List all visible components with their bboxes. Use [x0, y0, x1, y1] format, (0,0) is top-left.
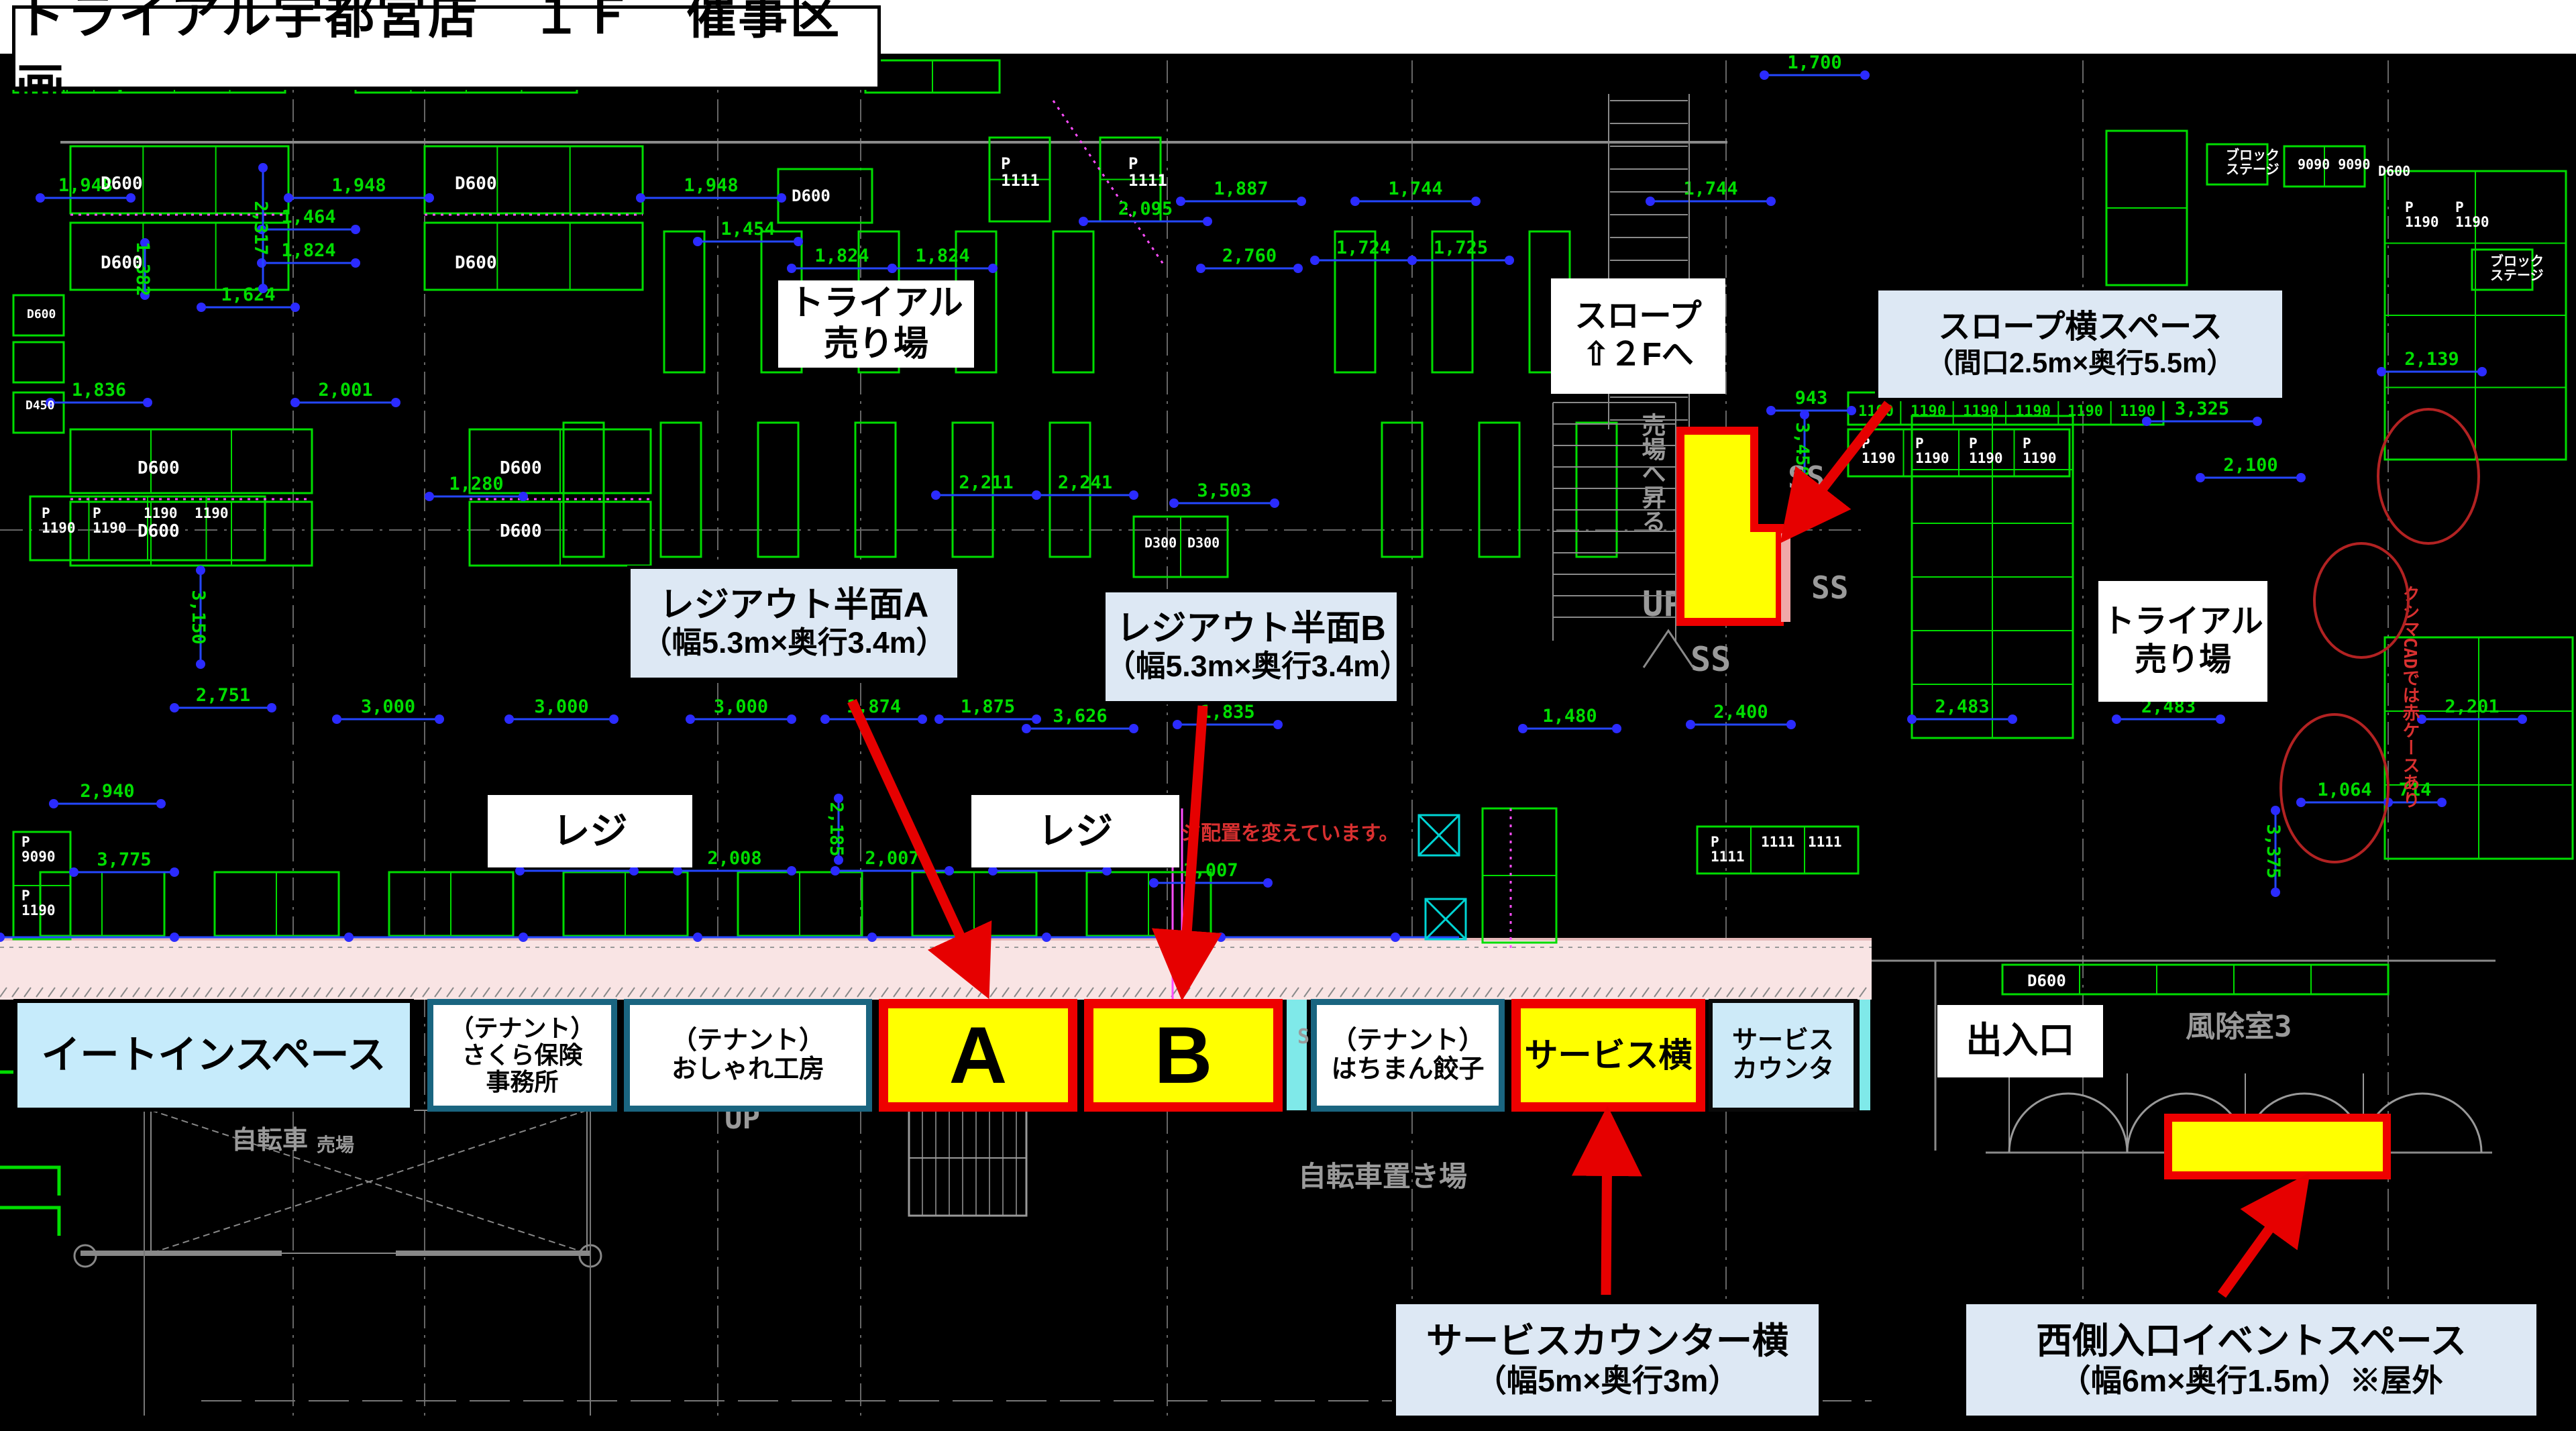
dim-dot: [777, 193, 786, 203]
dim-dot: [1102, 866, 1112, 876]
label-regi-2: レジ: [971, 795, 1179, 867]
dim-dot: [787, 264, 796, 273]
cad-text: D450: [25, 399, 54, 413]
dim-dot: [888, 264, 897, 273]
dimension-label: 3,375: [2263, 824, 2284, 878]
dim-dot: [2112, 714, 2121, 724]
dim-dot: [2477, 367, 2487, 376]
dim-dot: [170, 703, 179, 712]
dimension-label: 1,454: [720, 219, 775, 240]
dimension-label: 3,325: [2175, 399, 2229, 419]
dimension-label: 2,139: [2404, 349, 2459, 370]
dim-dot: [988, 866, 998, 876]
dim-dot: [1022, 724, 1031, 733]
dim-dot: [931, 490, 941, 500]
dim-dot: [1169, 498, 1179, 508]
cad-text: 1190: [1858, 403, 1894, 420]
dimension-label: 1,725: [1434, 237, 1488, 258]
dimension-label: 2,400: [1713, 702, 1768, 723]
dim-dot: [1646, 197, 1655, 206]
dimension-label: 2,008: [707, 848, 761, 869]
callout-service-counter-side: サービスカウンター横 （幅5m×奥行3m）: [1392, 1300, 1823, 1420]
dim-dot: [1310, 256, 1320, 265]
dim-dot: [2008, 714, 2017, 724]
dimension-label: 1,724: [1336, 237, 1391, 258]
dim-dot: [673, 866, 682, 876]
dim-dot: [1129, 724, 1138, 733]
dim-dot: [1518, 724, 1527, 733]
dim-dot: [258, 163, 268, 172]
tenant-hachiman-gyoza: （テナント） はちまん餃子: [1311, 999, 1505, 1112]
dim-dot: [787, 714, 796, 724]
callout-slope-side-space: スロープ横スペース （間口2.5m×奥行5.5m）: [1875, 287, 2286, 401]
dimension-label: 2,185: [826, 802, 847, 856]
tenant-sakura-insurance: （テナント） さくら保険 事務所: [427, 999, 617, 1112]
dim-dot: [1270, 498, 1279, 508]
dim-dot: [693, 933, 702, 942]
dim-dot: [1176, 197, 1185, 206]
dim-dot: [1407, 256, 1417, 265]
dim-dot: [867, 933, 877, 942]
dim-dot: [2253, 417, 2262, 426]
dim-dot: [435, 714, 444, 724]
label-exit: 出入口: [1937, 1005, 2103, 1077]
dim-dot: [344, 933, 354, 942]
dim-dot: [425, 193, 434, 203]
dimension-label: 1,824: [915, 246, 969, 266]
dimension-label: 1,875: [961, 696, 1015, 717]
cad-text: 1190: [1911, 403, 1946, 420]
cad-text: ブロックステージ: [2490, 253, 2544, 283]
label-slope-to-2f: スロープ ⇧２Fへ: [1551, 278, 1725, 394]
dimension-label: 1,064: [2317, 780, 2371, 800]
dim-dot: [2271, 806, 2280, 815]
tenant-oshare-kobo: （テナント） おしゃれ工房: [624, 999, 872, 1112]
dimension-label: 2,241: [1058, 472, 1112, 493]
label-trial-floor-left: トライアル 売り場: [778, 280, 974, 368]
cad-text: 1190: [2068, 403, 2103, 420]
dimension-label: 2,317: [250, 201, 271, 255]
dim-dot: [1907, 714, 1917, 724]
dimension-label: 1,480: [1542, 706, 1597, 727]
cad-text: D600: [455, 253, 497, 273]
dim-dot: [2377, 367, 2386, 376]
cad-background: [0, 54, 2576, 1431]
cad-text: 1190: [2015, 403, 2051, 420]
cyan-strip: [1287, 1000, 1307, 1110]
dim-dot: [504, 714, 514, 724]
cad-text: SS: [1811, 570, 1848, 606]
event-space-b: B: [1084, 999, 1283, 1112]
cad-text: 風除室3: [2186, 1010, 2292, 1044]
dim-dot: [1350, 197, 1360, 206]
dim-dot: [267, 703, 276, 712]
cad-text: D300: [1144, 535, 1177, 551]
cad-text: レジ配置を変えています。: [1161, 822, 1399, 845]
dim-dot: [1129, 490, 1138, 500]
dim-dot: [1293, 264, 1303, 273]
dimension-label: 2,007: [1183, 860, 1238, 881]
dimension-label: 2,100: [2223, 455, 2277, 476]
dim-dot: [1273, 720, 1283, 729]
dim-dot: [515, 866, 525, 876]
dim-dot: [391, 398, 400, 407]
cad-text: D600: [101, 174, 143, 194]
dimension-label: 3,626: [1053, 706, 1107, 727]
dim-dot: [1042, 933, 1051, 942]
dimension-label: 1,700: [1787, 52, 1841, 73]
dimension-label: 2,760: [1222, 246, 1277, 266]
dim-dot: [126, 193, 136, 203]
dim-dot: [834, 855, 843, 865]
callout-regi-half-a: レジアウト半面A （幅5.3m×奥行3.4m）: [627, 566, 961, 681]
dim-dot: [2216, 714, 2225, 724]
cad-text: 売場: [317, 1134, 354, 1156]
dim-dot: [1505, 256, 1514, 265]
cad-text: 1190: [144, 505, 178, 521]
dim-dot: [1766, 406, 1776, 415]
dim-dot: [636, 193, 645, 203]
dimension-label: 2,483: [1935, 696, 1989, 717]
dim-dot: [1760, 70, 1769, 80]
dim-dot: [820, 714, 830, 724]
dim-dot: [257, 258, 266, 268]
pink-strip: [1781, 533, 1790, 622]
dim-dot: [686, 714, 695, 724]
cad-text: D600: [500, 458, 542, 478]
cad-text: D600: [2027, 971, 2066, 990]
dim-dot: [290, 303, 300, 312]
west-entrance-highlight: [2168, 1118, 2387, 1175]
space-eat-in: イートインスペース: [13, 999, 414, 1112]
callout-west-entrance-event-space: 西側入口イベントスペース （幅6m×奥行1.5m）※屋外: [1962, 1300, 2540, 1420]
dimension-label: 2,095: [1118, 199, 1173, 219]
cad-text: 9090 9090: [2298, 156, 2370, 172]
dim-dot: [609, 714, 619, 724]
page-title-text: トライアル宇都宮店 １Ｆ 催事区画: [15, 0, 877, 119]
dim-dot: [351, 225, 360, 234]
dim-dot: [1173, 720, 1182, 729]
cad-text: SS: [1788, 460, 1825, 496]
dimension-label: 1,280: [449, 474, 503, 494]
dim-dot: [170, 867, 179, 877]
dim-dot: [1847, 406, 1856, 415]
dim-dot: [425, 492, 434, 501]
cad-text: SS: [1690, 640, 1731, 679]
dim-dot: [1297, 197, 1306, 206]
dim-dot: [2518, 714, 2527, 724]
event-space-a: A: [879, 999, 1077, 1112]
dim-dot: [2296, 798, 2306, 807]
cad-text: D600: [138, 458, 180, 478]
callout-regi-half-b: レジアウト半面B （幅5.3m×奥行3.4m）: [1102, 589, 1400, 704]
dim-dot: [1786, 720, 1796, 729]
dimension-label: 1,835: [1200, 702, 1254, 723]
cad-text: ブロックステージ: [2226, 147, 2279, 177]
dim-dot: [1860, 70, 1870, 80]
dim-dot: [1203, 217, 1212, 226]
event-space-service-side: サービス横: [1511, 999, 1705, 1112]
dim-dot: [197, 303, 206, 312]
dimension-label: 2,751: [196, 685, 250, 706]
dim-dot: [196, 659, 205, 669]
dim-dot: [69, 867, 78, 877]
dimension-label: 3,000: [714, 696, 768, 717]
cad-text: 自転車置き場: [1298, 1160, 1467, 1193]
dim-dot: [519, 933, 528, 942]
dim-dot: [1216, 933, 1226, 942]
dim-dot: [156, 799, 166, 808]
dim-dot: [1032, 490, 1041, 500]
dim-dot: [258, 284, 268, 293]
cad-text: 売場へ昇る: [1638, 413, 1666, 533]
dim-dot: [787, 866, 796, 876]
dim-dot: [2296, 473, 2306, 482]
dim-dot: [332, 714, 341, 724]
cad-drawing: 1,9481,9481,9482,0951,8871,7441,7441,700…: [0, 0, 2576, 1431]
dim-dot: [1800, 410, 1809, 419]
dimension-label: 1,744: [1683, 178, 1737, 199]
cad-text: D600: [500, 521, 542, 541]
dimension-label: 3,000: [361, 696, 415, 717]
dim-dot: [918, 714, 927, 724]
dimension-label: 2,211: [959, 472, 1013, 493]
dim-dot: [1471, 197, 1481, 206]
space-service-counter: サービス カウンタ: [1709, 999, 1858, 1112]
dim-dot: [2196, 473, 2205, 482]
cad-text: D600: [2378, 163, 2410, 179]
cad-text: 1190: [195, 505, 229, 521]
dim-dot: [290, 398, 300, 407]
dim-dot: [988, 264, 998, 273]
dimension-label: 943: [1795, 388, 1828, 409]
cad-text: D600: [138, 521, 180, 541]
dim-dot: [934, 714, 944, 724]
dim-dot: [794, 237, 803, 246]
cad-text: D600: [101, 253, 143, 273]
dim-dot: [1263, 878, 1273, 888]
dim-dot: [1149, 878, 1159, 888]
dimension-label: 1,836: [72, 380, 126, 401]
cyan-strip: [1860, 1000, 1870, 1110]
dim-dot: [170, 933, 179, 942]
dimension-label: 1,464: [281, 207, 335, 227]
dimension-label: 1,948: [684, 175, 738, 196]
dimension-label: 1,744: [1388, 178, 1442, 199]
dimension-label: 3,775: [97, 849, 151, 870]
dimension-label: 1,824: [281, 240, 335, 261]
dim-dot: [49, 799, 58, 808]
dimension-label: 2,007: [865, 848, 919, 869]
dimension-label: 2,201: [2445, 696, 2499, 717]
dimension-label: 1,948: [331, 175, 386, 196]
cad-text: 自転車: [231, 1125, 308, 1155]
cad-text: 1190: [2120, 403, 2155, 420]
dim-dot: [2437, 798, 2447, 807]
dimension-label: 3,150: [188, 590, 209, 644]
cad-text: クシマCADでは赤ケースあり: [2400, 585, 2420, 808]
dimension-label: 3,503: [1197, 480, 1251, 501]
dim-dot: [693, 237, 702, 246]
dim-dot: [1766, 197, 1776, 206]
dim-dot: [2271, 888, 2280, 897]
dimension-label: 1,887: [1214, 178, 1268, 199]
dim-dot: [1196, 264, 1205, 273]
dim-dot: [1079, 217, 1088, 226]
cad-text: 1111: [1808, 834, 1842, 850]
dim-dot: [36, 193, 45, 203]
cad-text: D600: [792, 187, 830, 205]
dim-dot: [143, 398, 152, 407]
dim-dot: [519, 492, 528, 501]
dim-dot: [351, 258, 360, 268]
dimension-label: 3,000: [534, 696, 588, 717]
dim-dot: [945, 866, 954, 876]
label-regi-1: レジ: [488, 795, 692, 867]
cad-text: D300: [1187, 535, 1220, 551]
dim-dot: [629, 866, 639, 876]
dim-dot: [1032, 714, 1041, 724]
dimension-label: 2,940: [80, 781, 134, 802]
dim-dot: [830, 866, 840, 876]
dim-dot: [284, 193, 293, 203]
dimension-label: 1,874: [847, 696, 901, 717]
floorplan-slide: 1,9481,9481,9482,0951,8871,7441,7441,700…: [0, 0, 2576, 1431]
dim-dot: [1391, 933, 1400, 942]
cad-text: D600: [27, 307, 56, 321]
page-title: トライアル宇都宮店 １Ｆ 催事区画: [12, 5, 881, 90]
dimension-label: 2,001: [318, 380, 372, 401]
cad-text: 1190: [1963, 403, 1998, 420]
dimension-label: 1,824: [814, 246, 869, 266]
cad-text: 1111: [1761, 834, 1795, 850]
dim-dot: [1612, 724, 1621, 733]
label-trial-floor-right: トライアル 売り場: [2098, 581, 2267, 702]
dim-dot: [1686, 720, 1695, 729]
cad-text: D600: [455, 174, 497, 194]
dim-dot: [196, 566, 205, 575]
